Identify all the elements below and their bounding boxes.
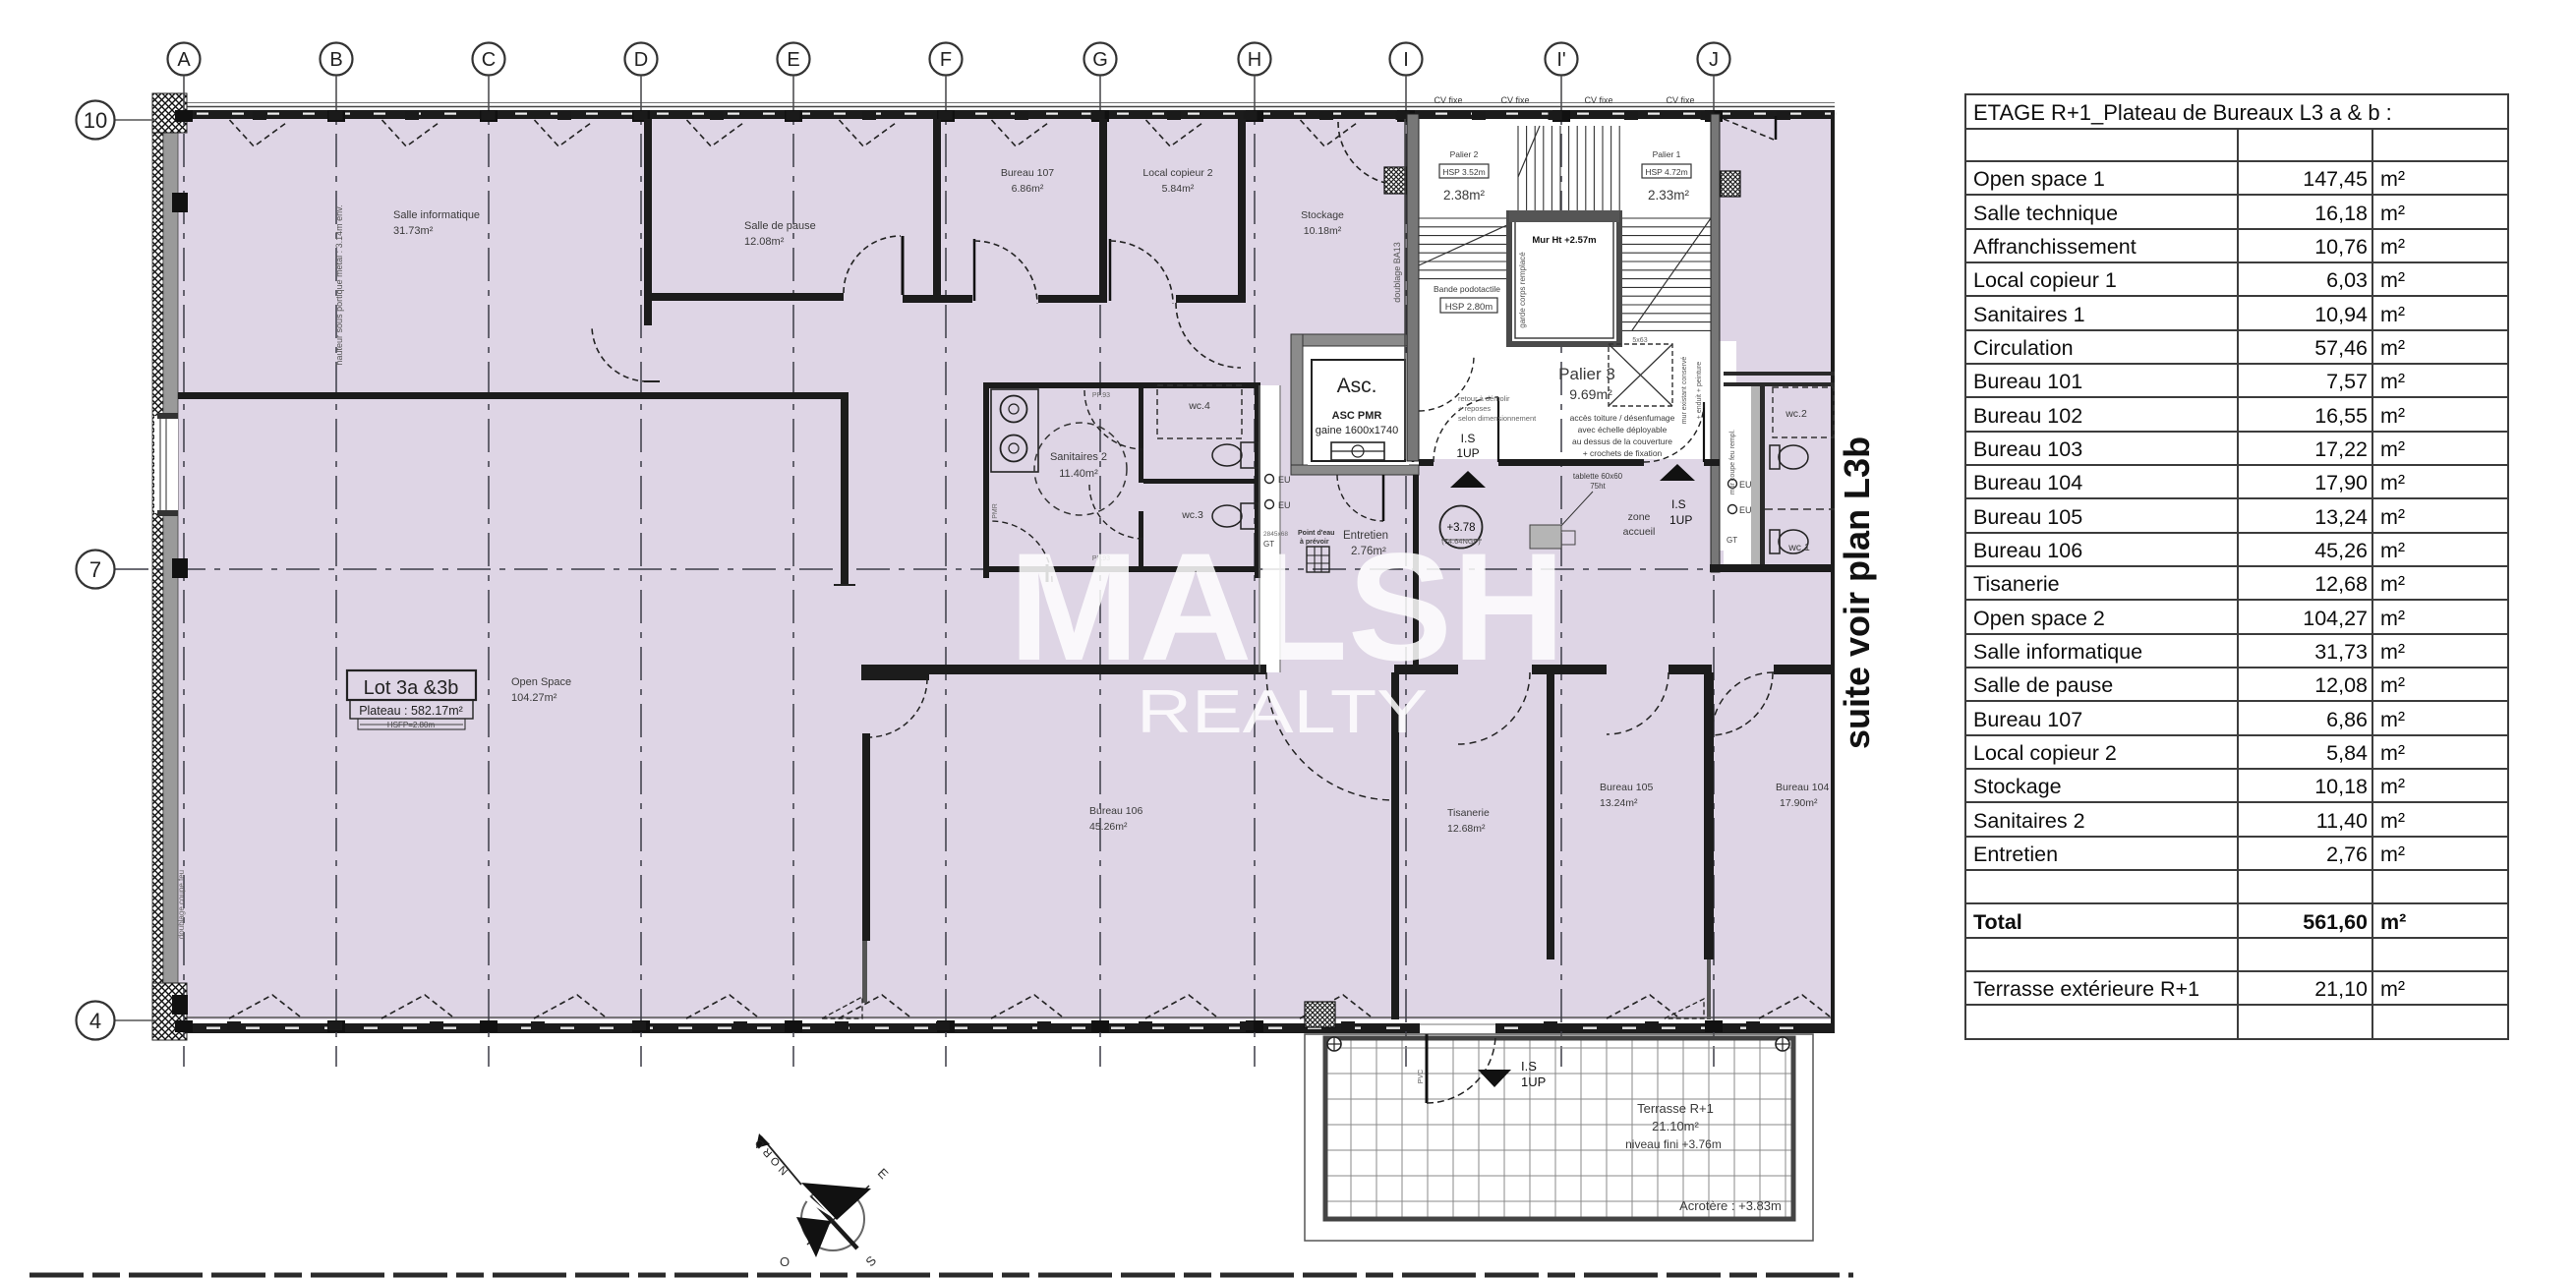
svg-text:CV fixe: CV fixe bbox=[1666, 95, 1694, 105]
svg-text:niveau fini +3.76m: niveau fini +3.76m bbox=[1625, 1137, 1722, 1151]
svg-text:Acrotère : +3.83m: Acrotère : +3.83m bbox=[1679, 1198, 1782, 1213]
svg-text:C: C bbox=[482, 49, 496, 71]
svg-text:Local copieur 2: Local copieur 2 bbox=[1142, 167, 1212, 179]
svg-text:tablette 60x60: tablette 60x60 bbox=[1573, 472, 1623, 481]
svg-text:zone: zone bbox=[1628, 511, 1651, 523]
svg-text:Bureau 104: Bureau 104 bbox=[1776, 782, 1829, 793]
svg-text:F: F bbox=[940, 49, 952, 71]
svg-text:MALSH: MALSH bbox=[1009, 522, 1565, 693]
svg-text:31.73m²: 31.73m² bbox=[393, 225, 434, 237]
svg-text:J: J bbox=[1709, 49, 1719, 71]
svg-text:selon dimensionnement: selon dimensionnement bbox=[1458, 414, 1537, 423]
svg-text:H: H bbox=[1248, 49, 1261, 71]
svg-text:CV fixe: CV fixe bbox=[1500, 95, 1529, 105]
svg-text:Open Space: Open Space bbox=[511, 676, 571, 688]
svg-text:+ reposes: + reposes bbox=[1458, 404, 1491, 413]
svg-text:accueil: accueil bbox=[1623, 526, 1656, 538]
svg-text:I': I' bbox=[1556, 49, 1565, 71]
svg-text:D: D bbox=[753, 1136, 767, 1150]
svg-text:mur coupe feu rempl.: mur coupe feu rempl. bbox=[1729, 430, 1736, 494]
svg-text:wc.2: wc.2 bbox=[1785, 408, 1807, 420]
svg-text:EU: EU bbox=[1278, 500, 1291, 510]
svg-text:+ crochets de fixation: + crochets de fixation bbox=[1583, 448, 1663, 458]
svg-text:PMR: PMR bbox=[992, 503, 999, 519]
svg-text:PP.93: PP.93 bbox=[1092, 392, 1110, 399]
svg-text:7: 7 bbox=[89, 557, 101, 582]
svg-text:Palier 1: Palier 1 bbox=[1653, 149, 1681, 159]
svg-text:Mur Ht +2.57m: Mur Ht +2.57m bbox=[1532, 235, 1596, 246]
svg-text:HSP 2.80m: HSP 2.80m bbox=[1445, 302, 1493, 313]
svg-text:5x63: 5x63 bbox=[1632, 337, 1647, 344]
svg-text:2.38m²: 2.38m² bbox=[1443, 188, 1486, 203]
svg-text:Bureau 106: Bureau 106 bbox=[1089, 805, 1142, 817]
svg-text:Bureau 107: Bureau 107 bbox=[1001, 167, 1054, 179]
svg-text:Asc.: Asc. bbox=[1337, 375, 1377, 397]
svg-text:5.84m²: 5.84m² bbox=[1162, 183, 1195, 195]
svg-text:GT: GT bbox=[1727, 536, 1737, 545]
svg-text:Palier 3: Palier 3 bbox=[1558, 365, 1615, 383]
svg-text:1UP: 1UP bbox=[1456, 446, 1479, 460]
svg-text:Plateau : 582.17m²: Plateau : 582.17m² bbox=[359, 704, 463, 718]
svg-text:I.S: I.S bbox=[1521, 1059, 1537, 1074]
svg-text:HSP 4.72m: HSP 4.72m bbox=[1645, 167, 1687, 177]
svg-text:A: A bbox=[177, 49, 191, 71]
svg-text:9.69m²: 9.69m² bbox=[1569, 386, 1612, 402]
svg-text:garde corps remplacé: garde corps remplacé bbox=[1518, 252, 1527, 328]
svg-text:E: E bbox=[787, 49, 799, 71]
svg-text:Stockage: Stockage bbox=[1301, 209, 1344, 221]
svg-text:doublage coupe feu: doublage coupe feu bbox=[177, 870, 186, 939]
svg-text:G: G bbox=[1092, 49, 1108, 71]
svg-text:wc.3: wc.3 bbox=[1181, 509, 1203, 521]
svg-text:accès toiture / désenfumage: accès toiture / désenfumage bbox=[1570, 413, 1675, 423]
svg-text:PVC: PVC bbox=[1418, 1070, 1425, 1083]
svg-text:CV fixe: CV fixe bbox=[1434, 95, 1462, 105]
svg-text:Lot 3a &3b: Lot 3a &3b bbox=[364, 677, 459, 699]
svg-text:I.S: I.S bbox=[1461, 432, 1476, 445]
svg-text:21.10m²: 21.10m² bbox=[1652, 1119, 1699, 1133]
svg-text:6.86m²: 6.86m² bbox=[1012, 183, 1044, 195]
svg-text:E: E bbox=[875, 1165, 892, 1182]
svg-text:75ht: 75ht bbox=[1590, 482, 1606, 491]
svg-text:2.33m²: 2.33m² bbox=[1648, 188, 1690, 203]
svg-text:mur existant conservé: mur existant conservé bbox=[1681, 357, 1688, 425]
svg-text:wc.4: wc.4 bbox=[1188, 400, 1210, 412]
svg-text:REALTY: REALTY bbox=[1137, 678, 1428, 746]
svg-text:HSP 3.52m: HSP 3.52m bbox=[1442, 167, 1485, 177]
svg-text:4: 4 bbox=[89, 1009, 101, 1033]
svg-text:13.24m²: 13.24m² bbox=[1600, 797, 1638, 809]
svg-text:gaine 1600x1740: gaine 1600x1740 bbox=[1316, 425, 1398, 436]
svg-text:11.40m²: 11.40m² bbox=[1059, 468, 1098, 480]
svg-text:retour à démolir: retour à démolir bbox=[1458, 394, 1510, 403]
svg-text:D: D bbox=[634, 49, 648, 71]
svg-text:I.S: I.S bbox=[1671, 497, 1686, 511]
svg-text:Tisanerie: Tisanerie bbox=[1447, 807, 1490, 819]
svg-text:EU: EU bbox=[1739, 480, 1752, 490]
svg-text:10.18m²: 10.18m² bbox=[1304, 225, 1342, 237]
svg-text:I: I bbox=[1403, 49, 1409, 71]
svg-text:1UP: 1UP bbox=[1521, 1075, 1546, 1089]
svg-text:EU: EU bbox=[1739, 505, 1752, 515]
svg-text:R: R bbox=[761, 1145, 775, 1159]
svg-text:avec échelle déployable: avec échelle déployable bbox=[1578, 425, 1668, 435]
svg-text:17.90m²: 17.90m² bbox=[1780, 797, 1818, 809]
svg-text:au dessus de la couverture: au dessus de la couverture bbox=[1572, 436, 1672, 446]
svg-text:S: S bbox=[862, 1252, 879, 1269]
svg-text:10: 10 bbox=[84, 108, 107, 133]
svg-text:Terrasse R+1: Terrasse R+1 bbox=[1637, 1101, 1714, 1116]
svg-text:ASC PMR: ASC PMR bbox=[1332, 410, 1382, 422]
svg-text:doublage BA13: doublage BA13 bbox=[1392, 242, 1402, 303]
svg-text:45.26m²: 45.26m² bbox=[1089, 821, 1128, 833]
svg-text:suite voir plan L3b: suite voir plan L3b bbox=[1837, 436, 1877, 749]
svg-text:EU: EU bbox=[1278, 475, 1291, 485]
svg-text:Sanitaires 2: Sanitaires 2 bbox=[1050, 451, 1107, 463]
svg-text:Salle de pause: Salle de pause bbox=[744, 220, 816, 232]
svg-text:hauteur sous portique métal :: hauteur sous portique métal : 3.14m env. bbox=[334, 205, 344, 366]
svg-text:12.68m²: 12.68m² bbox=[1447, 823, 1486, 835]
svg-text:12.08m²: 12.08m² bbox=[744, 236, 785, 248]
svg-text:Palier 2: Palier 2 bbox=[1450, 149, 1479, 159]
svg-text:O: O bbox=[780, 1254, 790, 1269]
svg-text:Bande podotactile: Bande podotactile bbox=[1434, 284, 1500, 294]
svg-text:+ enduit + peinture: + enduit + peinture bbox=[1696, 362, 1703, 419]
svg-text:104.27m²: 104.27m² bbox=[511, 692, 557, 704]
svg-text:1UP: 1UP bbox=[1669, 513, 1692, 527]
svg-text:B: B bbox=[329, 49, 342, 71]
svg-text:Salle informatique: Salle informatique bbox=[393, 209, 480, 221]
svg-text:CV fixe: CV fixe bbox=[1584, 95, 1612, 105]
svg-text:wc.1: wc.1 bbox=[1787, 542, 1810, 553]
svg-text:Bureau 105: Bureau 105 bbox=[1600, 782, 1653, 793]
